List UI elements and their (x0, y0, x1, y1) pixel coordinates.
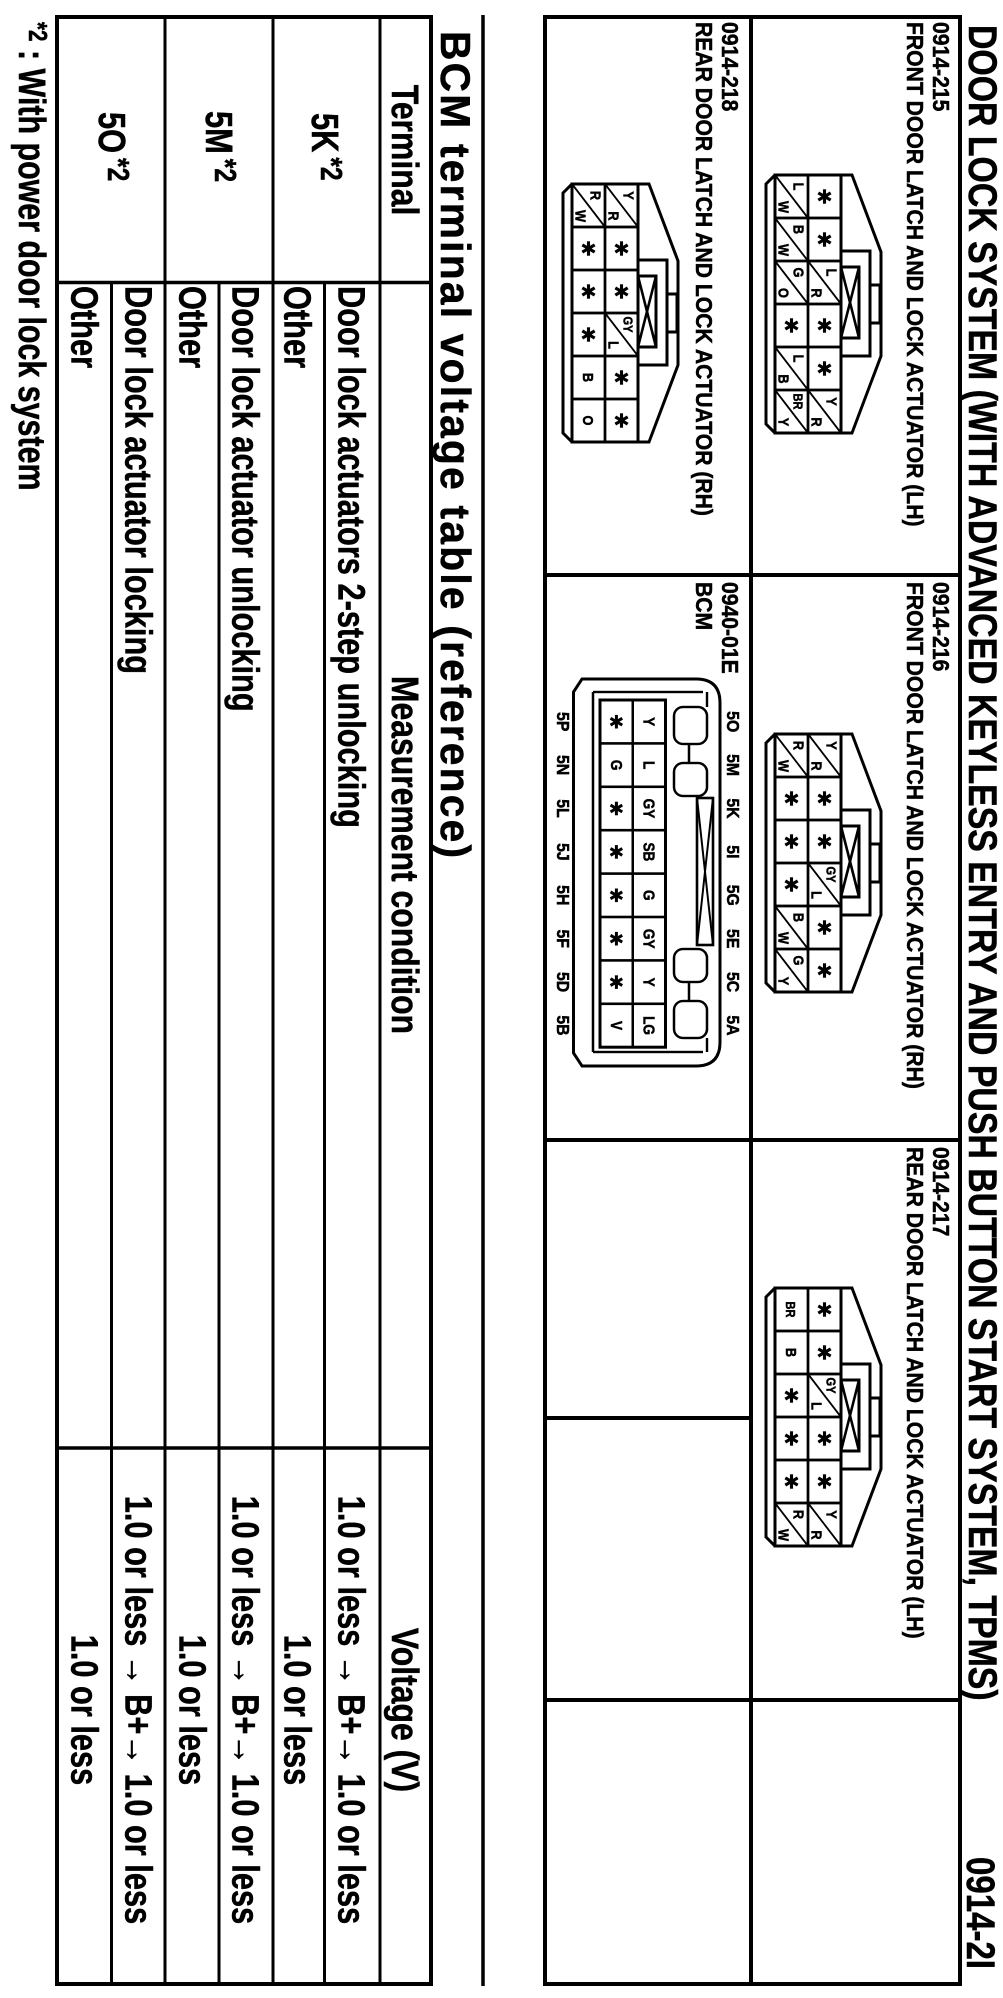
svg-text:Measurement condition: Measurement condition (383, 676, 425, 1034)
svg-text:Y: Y (639, 717, 656, 726)
svg-text:W: W (775, 760, 792, 773)
svg-text:5A: 5A (723, 1015, 743, 1035)
svg-text:R: R (605, 211, 622, 220)
svg-text:SB: SB (639, 842, 656, 861)
svg-text:5I: 5I (723, 845, 743, 858)
svg-text:W: W (775, 201, 792, 214)
svg-text:5J: 5J (553, 843, 573, 861)
svg-text:Terminal: Terminal (383, 85, 425, 216)
svg-text:BCM: BCM (691, 582, 717, 630)
svg-text:FRONT DOOR LATCH AND LOCK ACTU: FRONT DOOR LATCH AND LOCK ACTUATOR (LH) (902, 22, 928, 527)
svg-text:Y: Y (775, 977, 792, 986)
svg-text:Y: Y (823, 1510, 840, 1519)
svg-text:R: R (587, 191, 604, 200)
svg-text:L: L (823, 269, 840, 277)
svg-text:R: R (808, 288, 825, 297)
svg-text:L: L (808, 891, 825, 899)
svg-text:*2: *2 (208, 159, 242, 182)
svg-text:*2 : With power door lock syst: *2 : With power door lock system (10, 22, 52, 491)
svg-text:5O: 5O (723, 711, 743, 732)
svg-text:Door lock actuator unlocking: Door lock actuator unlocking (224, 286, 266, 712)
svg-text:0914-216: 0914-216 (928, 582, 954, 671)
svg-text:Other: Other (63, 286, 105, 368)
svg-text:5P: 5P (553, 712, 573, 731)
svg-text:R: R (808, 417, 825, 426)
svg-text:Door lock actuators 2-step unl: Door lock actuators 2-step unlocking (330, 286, 372, 828)
svg-text:GY: GY (639, 929, 656, 949)
svg-text:0914-218: 0914-218 (717, 22, 743, 111)
svg-text:B: B (790, 913, 807, 922)
svg-text:B: B (775, 374, 792, 383)
svg-text:LG: LG (639, 1016, 656, 1035)
svg-text:5D: 5D (553, 972, 573, 992)
svg-text:DOOR LOCK SYSTEM (WITH ADVANCE: DOOR LOCK SYSTEM (WITH ADVANCED KEYLESS … (960, 25, 1003, 1701)
svg-text:L: L (808, 1402, 825, 1410)
svg-text:Y: Y (775, 418, 792, 427)
svg-text:5L: 5L (553, 799, 573, 817)
svg-text:O: O (775, 288, 792, 298)
svg-text:R: R (790, 741, 807, 750)
svg-text:Voltage (V): Voltage (V) (383, 1628, 425, 1792)
svg-text:1.0 or less → B+→ 1.0 or less: 1.0 or less → B+→ 1.0 or less (117, 1496, 159, 1924)
svg-text:5H: 5H (553, 885, 573, 905)
svg-text:1.0 or less → B+→ 1.0 or less: 1.0 or less → B+→ 1.0 or less (330, 1496, 372, 1924)
svg-text:REAR DOOR LATCH AND LOCK ACTUA: REAR DOOR LATCH AND LOCK ACTUATOR (RH) (691, 22, 717, 516)
svg-text:Y: Y (823, 397, 840, 406)
svg-text:5K: 5K (303, 113, 345, 152)
svg-text:*2: *2 (101, 158, 135, 181)
svg-text:L: L (605, 341, 622, 349)
svg-text:GY: GY (823, 1378, 838, 1394)
svg-text:1.0 or less: 1.0 or less (276, 1635, 318, 1786)
svg-text:W: W (572, 210, 589, 223)
svg-text:R: R (790, 1510, 807, 1519)
svg-text:*2: *2 (314, 157, 348, 180)
svg-text:R: R (808, 1530, 825, 1539)
svg-text:5C: 5C (723, 972, 743, 992)
svg-text:GY: GY (823, 867, 838, 883)
svg-text:Y: Y (639, 978, 656, 987)
svg-text:B: B (790, 225, 807, 234)
svg-text:Door lock actuator locking: Door lock actuator locking (117, 286, 159, 674)
svg-text:GY: GY (620, 317, 635, 333)
svg-text:5N: 5N (553, 755, 573, 775)
svg-text:R: R (808, 761, 825, 770)
svg-text:5K: 5K (723, 798, 743, 819)
svg-text:5F: 5F (553, 929, 573, 947)
svg-text:B: B (783, 1348, 800, 1357)
svg-text:0940-01E: 0940-01E (717, 582, 743, 674)
svg-text:L: L (790, 183, 807, 191)
svg-text:5O: 5O (90, 112, 132, 153)
svg-text:5B: 5B (553, 1015, 573, 1035)
svg-text:5G: 5G (723, 885, 743, 906)
svg-text:Other: Other (171, 286, 213, 368)
svg-text:GY: GY (639, 799, 656, 819)
svg-text:1.0 or less: 1.0 or less (63, 1635, 105, 1786)
svg-text:W: W (775, 932, 792, 945)
svg-text:BCM terminal voltage table (re: BCM terminal voltage table (reference) (432, 31, 479, 860)
svg-text:G: G (639, 890, 656, 901)
svg-text:0914-217: 0914-217 (928, 1147, 954, 1236)
svg-text:L: L (639, 761, 656, 769)
svg-text:G: G (607, 760, 624, 771)
svg-text:G: G (790, 956, 807, 966)
svg-text:BR: BR (790, 394, 805, 410)
svg-text:W: W (775, 244, 792, 257)
svg-text:Y: Y (620, 191, 637, 200)
svg-text:BR: BR (783, 1302, 798, 1318)
svg-text:V: V (607, 1021, 624, 1030)
svg-text:5M: 5M (197, 111, 239, 154)
svg-text:0914-215: 0914-215 (928, 22, 954, 111)
svg-text:W: W (775, 1529, 792, 1542)
svg-text:Other: Other (276, 286, 318, 368)
svg-text:G: G (790, 268, 807, 278)
svg-text:5M: 5M (723, 754, 743, 776)
svg-text:0914-2I: 0914-2I (958, 1857, 1003, 1969)
svg-text:FRONT DOOR LATCH AND LOCK ACTU: FRONT DOOR LATCH AND LOCK ACTUATOR (RH) (902, 582, 928, 1089)
svg-text:B: B (580, 373, 597, 382)
svg-text:1.0 or less: 1.0 or less (171, 1635, 213, 1786)
svg-text:O: O (580, 416, 597, 426)
svg-text:Y: Y (823, 741, 840, 750)
svg-text:5E: 5E (723, 929, 743, 948)
svg-text:REAR DOOR LATCH AND LOCK ACTUA: REAR DOOR LATCH AND LOCK ACTUATOR (LH) (902, 1147, 928, 1639)
svg-text:1.0 or less → B+→ 1.0 or less: 1.0 or less → B+→ 1.0 or less (224, 1496, 266, 1924)
svg-text:L: L (790, 355, 807, 363)
